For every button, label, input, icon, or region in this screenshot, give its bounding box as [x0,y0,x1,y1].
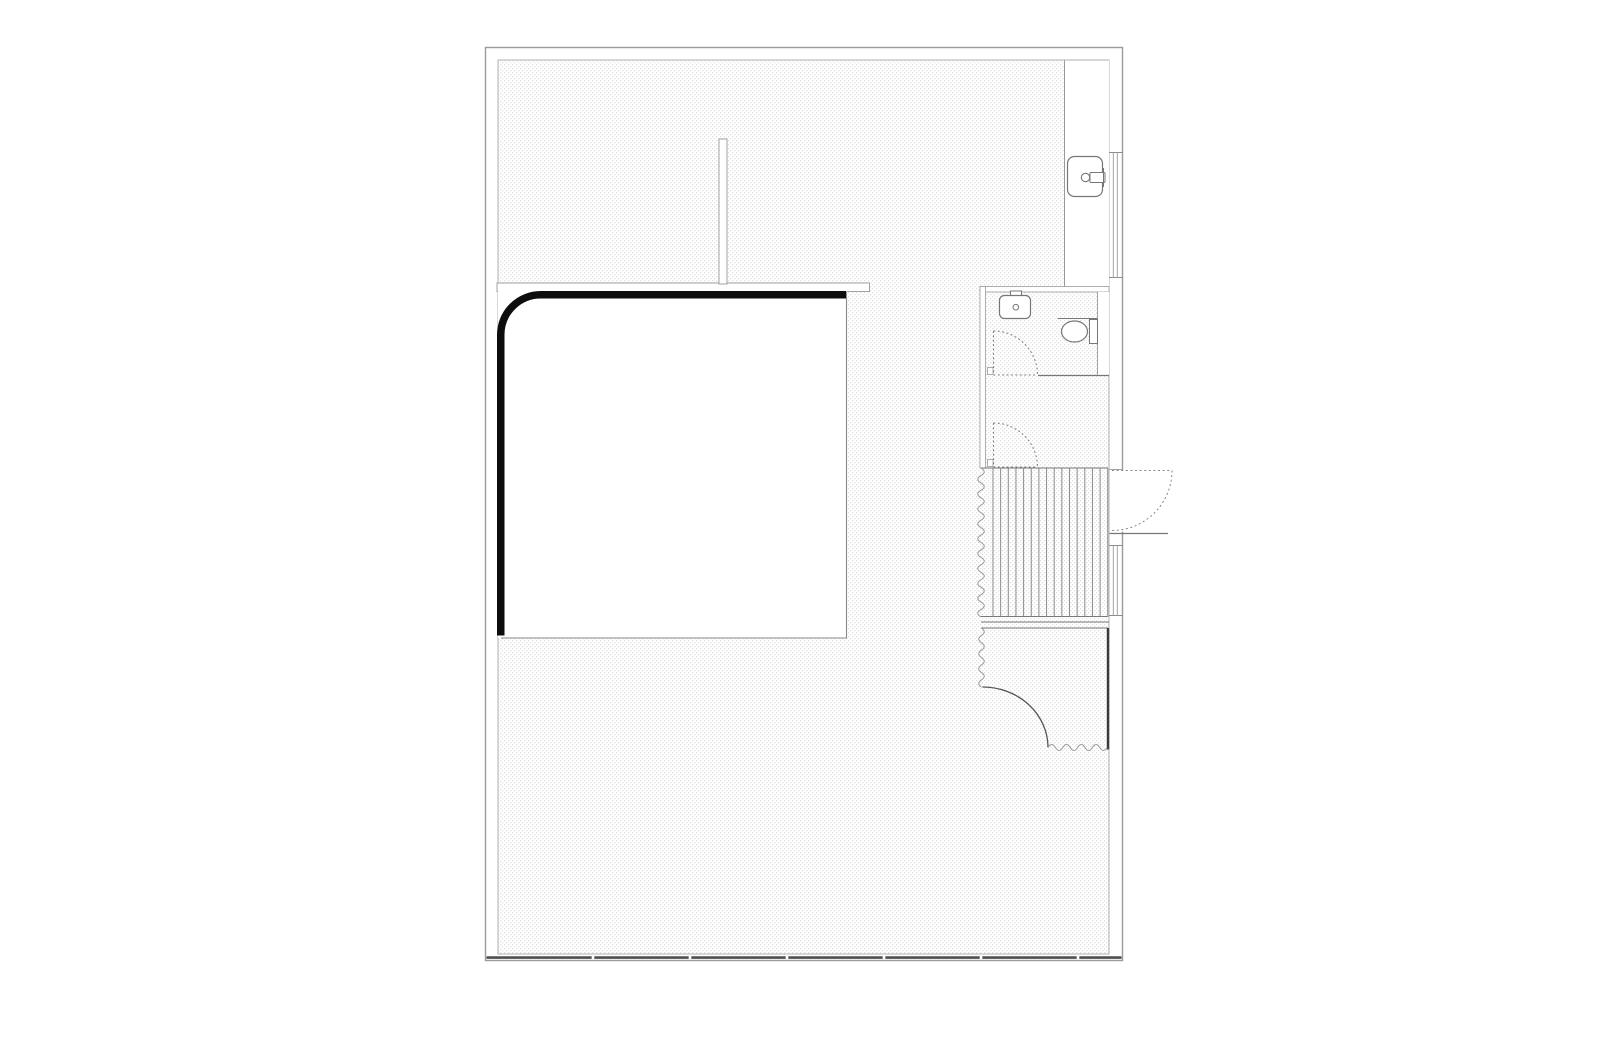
bathroom-top-wall [980,287,1109,293]
toilet-tank [1090,320,1098,344]
wall-sink-spout [1090,173,1105,183]
bathroom-sink-icon [1000,291,1031,319]
sink-basin [1000,296,1031,319]
toilet-bowl [1062,321,1088,342]
facade-mullion-gap [980,956,983,960]
toilet-icon [1062,320,1098,344]
entry-opening-erase [1115,470,1127,532]
facade-mullion-gap [689,956,692,960]
floor-plan [0,0,1600,1061]
bathroom-shaft-fill [1098,292,1110,376]
floor-plan-canvas [0,0,1600,1061]
upper-rooms-bottom-wall [497,283,870,292]
facade-mullion-gap [883,956,886,960]
entry-door [1109,470,1172,534]
white-platform [498,291,847,638]
facade-mullion-gap [786,956,789,960]
facade-glazing [487,956,1122,960]
upper-partition-wall [719,139,727,284]
wall-sink-knob [1081,173,1089,181]
facade-mullion-gap [1077,956,1080,960]
closet-door-jamb [988,460,994,467]
wall-sink-icon [1068,157,1106,197]
bathroom-door-jamb [988,368,994,375]
platform-fill [498,291,847,638]
facade-mullion-gap [592,956,595,960]
bathroom-left-wall [980,287,986,469]
right-wall-windows [1109,153,1123,616]
